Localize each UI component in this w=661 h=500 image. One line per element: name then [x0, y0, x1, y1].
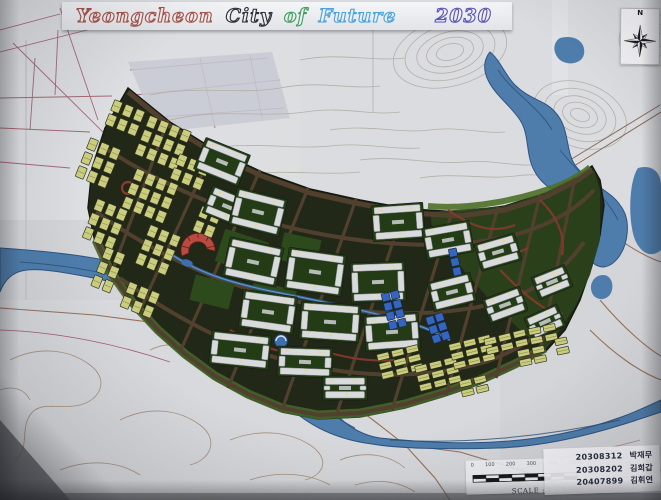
- apartment-block: [299, 301, 362, 343]
- scale-tick: 0: [471, 462, 474, 468]
- apartment-block: [277, 346, 333, 378]
- student-id: 20407899: [576, 475, 623, 489]
- student-name: 박재무: [629, 449, 652, 462]
- apartment-block: [208, 330, 271, 370]
- title-segment: Yeongcheon: [76, 5, 214, 27]
- student-name: 김휘연: [630, 474, 653, 487]
- compass-rose-icon: [623, 18, 657, 62]
- masterplan-map: [0, 0, 661, 500]
- credits-card: 20308312박재무20308202김희갑20407899김휘연: [543, 445, 661, 495]
- title-segment: City: [226, 5, 272, 27]
- title-segment: Future: [319, 5, 397, 27]
- scale-tick: 200: [506, 461, 516, 467]
- apartment-block: [283, 247, 346, 297]
- model-photo: YeongcheonCityofFuture2030 N 01002003004…: [0, 0, 661, 500]
- title-segment: of: [284, 5, 307, 27]
- compass-card: N: [620, 8, 661, 65]
- credit-row: 20407899김휘연: [551, 474, 653, 490]
- scale-tick: 300: [527, 461, 537, 467]
- scale-tick: 100: [485, 462, 495, 468]
- apartment-block: [371, 202, 425, 242]
- compass-north-label: N: [621, 9, 659, 18]
- student-name: 김희갑: [630, 462, 653, 475]
- apartment-block: [238, 289, 298, 334]
- apartment-block: [323, 376, 368, 400]
- title-banner: YeongcheonCityofFuture2030: [62, 2, 512, 30]
- title-segment: 2030: [435, 5, 492, 27]
